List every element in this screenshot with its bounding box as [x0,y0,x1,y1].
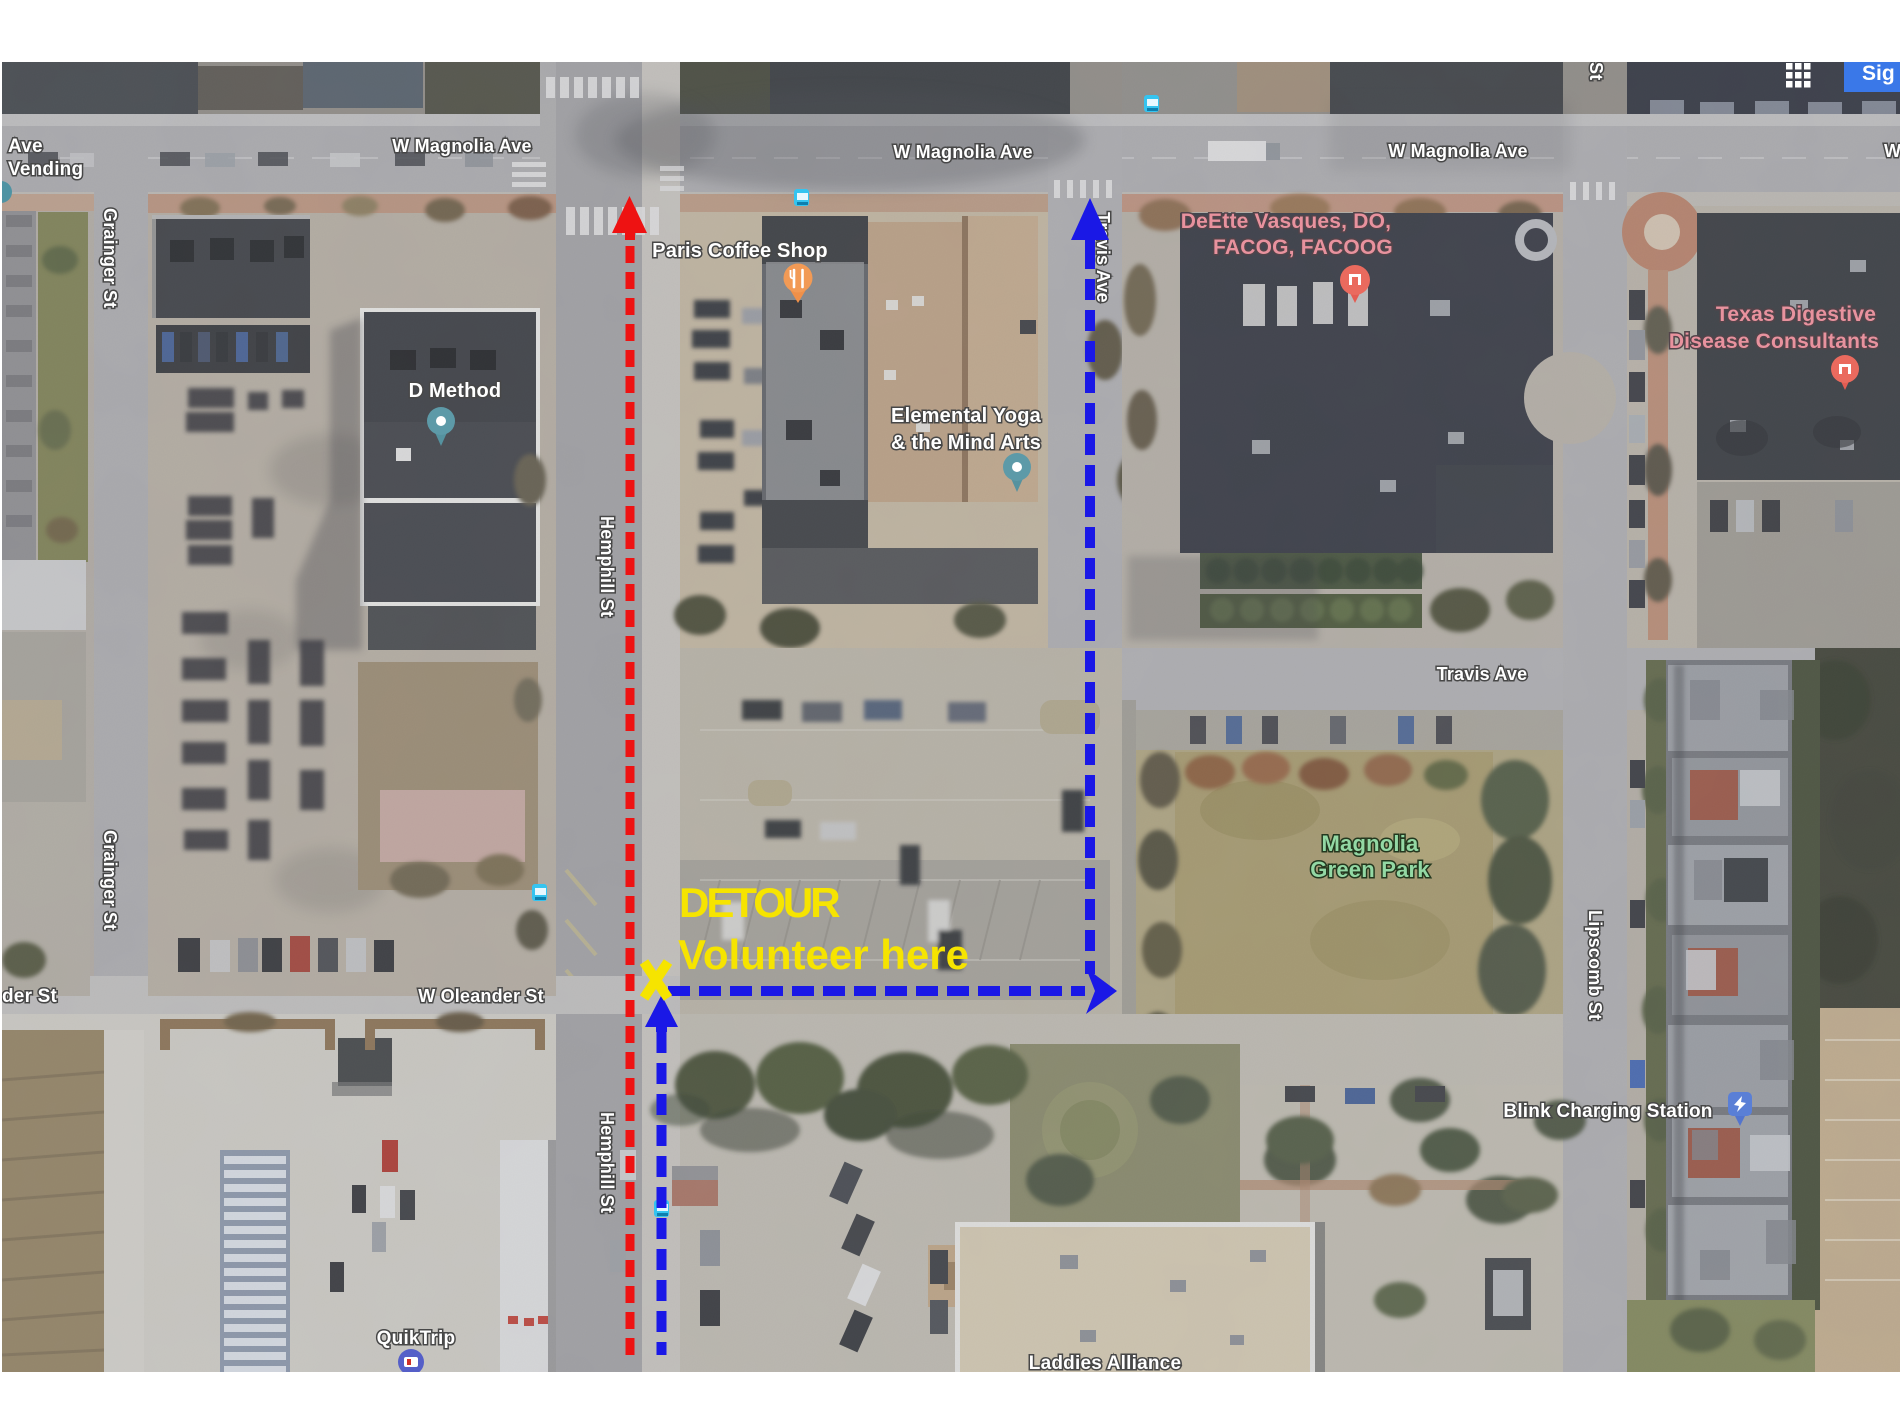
svg-text:Magnolia: Magnolia [1322,831,1420,856]
svg-text:Lipscomb St: Lipscomb St [1585,910,1605,1020]
svg-text:Laddies Alliance: Laddies Alliance [1029,1353,1181,1374]
svg-text:Grainger St: Grainger St [100,208,120,308]
svg-text:W Magnolia Ave: W Magnolia Ave [893,142,1032,162]
svg-text:Hemphill St: Hemphill St [597,516,617,617]
svg-text:W Magnolia Ave: W Magnolia Ave [392,136,531,156]
svg-text:Travis Ave: Travis Ave [1437,664,1528,684]
svg-text:Paris Coffee Shop: Paris Coffee Shop [652,240,828,262]
svg-text:W M: W M [1884,141,1900,161]
svg-text:DeEtte Vasques, DO,: DeEtte Vasques, DO, [1181,210,1391,233]
svg-text:W Magnolia Ave: W Magnolia Ave [1388,141,1527,161]
svg-text:Elemental Yoga: Elemental Yoga [891,405,1042,427]
svg-text:W Oleander St: W Oleander St [418,986,544,1006]
svg-text:St: St [1586,62,1606,80]
svg-text:& the Mind Arts: & the Mind Arts [891,432,1041,454]
svg-text:QuikTrip: QuikTrip [377,1328,456,1349]
svg-text:Grainger St: Grainger St [100,830,120,930]
svg-text:DETOUR: DETOUR [679,879,840,926]
svg-text:Texas Digestive: Texas Digestive [1716,303,1876,326]
svg-text:Ave: Ave [8,136,43,157]
svg-text:Disease Consultants: Disease Consultants [1669,330,1879,353]
svg-text:Volunteer here: Volunteer here [678,931,969,978]
svg-text:der St: der St [2,986,58,1007]
svg-text:Green Park: Green Park [1310,857,1430,882]
svg-text:Vending: Vending [8,159,83,180]
svg-text:Hemphill St: Hemphill St [597,1112,617,1213]
svg-text:D Method: D Method [409,380,502,402]
svg-text:Blink Charging Station: Blink Charging Station [1503,1101,1712,1122]
svg-text:Sig: Sig [1862,62,1895,85]
svg-text:FACOG, FACOOG: FACOG, FACOOG [1213,236,1393,259]
